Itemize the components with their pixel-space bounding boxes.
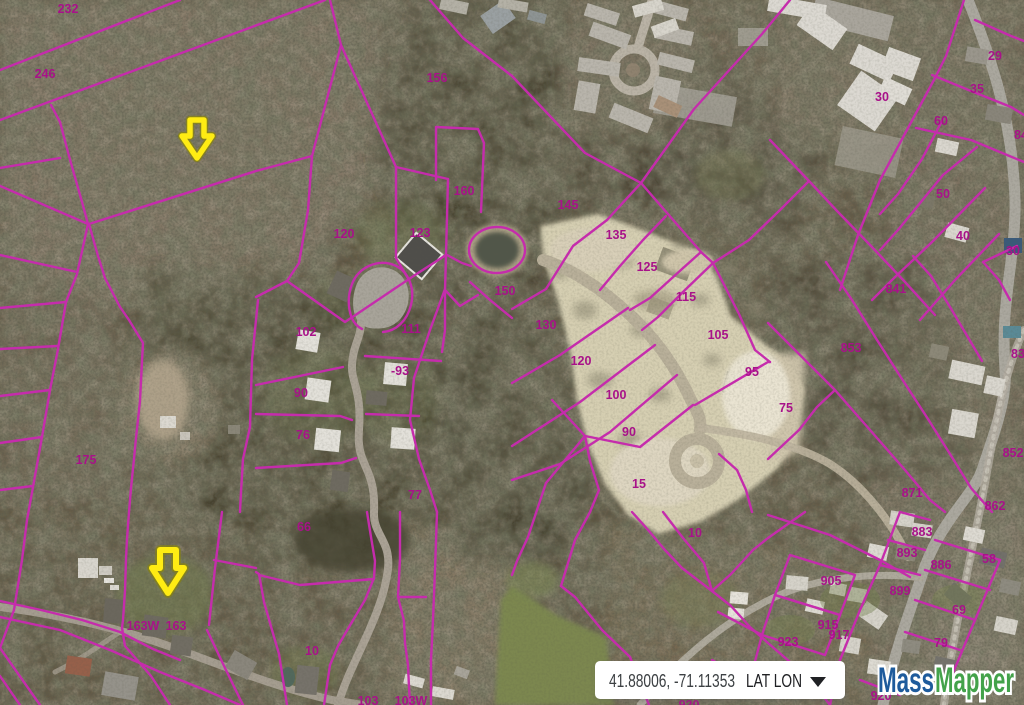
svg-text:905: 905	[821, 574, 842, 588]
svg-text:58: 58	[982, 552, 996, 566]
svg-text:120: 120	[571, 354, 592, 368]
svg-text:10: 10	[688, 526, 702, 540]
svg-text:899: 899	[890, 584, 911, 598]
svg-text:79: 79	[934, 636, 948, 650]
svg-text:160: 160	[454, 184, 475, 198]
svg-text:69: 69	[952, 603, 966, 617]
svg-text:871: 871	[902, 486, 923, 500]
svg-text:130: 130	[536, 318, 557, 332]
svg-text:145: 145	[558, 198, 579, 212]
svg-text:Mapper: Mapper	[935, 661, 1014, 700]
svg-text:163: 163	[166, 619, 187, 633]
svg-text:30: 30	[1006, 244, 1020, 258]
svg-text:40: 40	[956, 229, 970, 243]
svg-text:246: 246	[35, 67, 56, 81]
svg-text:923: 923	[778, 635, 799, 649]
svg-text:893: 893	[897, 546, 918, 560]
svg-text:105: 105	[708, 328, 729, 342]
svg-text:100: 100	[606, 388, 627, 402]
svg-text:163W: 163W	[127, 619, 160, 633]
svg-text:852: 852	[1003, 446, 1024, 460]
svg-text:853: 853	[841, 341, 862, 355]
svg-text:29: 29	[988, 49, 1002, 63]
svg-text:84: 84	[1014, 128, 1024, 142]
svg-text:135: 135	[606, 228, 627, 242]
svg-text:50: 50	[936, 187, 950, 201]
svg-text:30: 30	[875, 90, 889, 104]
svg-text:841: 841	[886, 282, 907, 296]
svg-text:125: 125	[637, 260, 658, 274]
svg-text:75: 75	[779, 401, 793, 415]
svg-text:Mass: Mass	[878, 661, 934, 700]
svg-text:103: 103	[358, 694, 379, 705]
svg-text:232: 232	[58, 2, 79, 16]
svg-text:120: 120	[334, 227, 355, 241]
svg-text:156: 156	[427, 71, 448, 85]
svg-text:60: 60	[934, 114, 948, 128]
svg-text:862: 862	[985, 499, 1006, 513]
svg-text:-93: -93	[391, 364, 409, 378]
svg-text:95: 95	[745, 365, 759, 379]
svg-text:90: 90	[622, 425, 636, 439]
svg-text:66: 66	[297, 520, 311, 534]
svg-text:917: 917	[829, 628, 850, 642]
svg-text:76: 76	[296, 428, 310, 442]
svg-text:LAT LON: LAT LON	[746, 670, 802, 691]
svg-text:15: 15	[632, 477, 646, 491]
svg-text:102: 102	[296, 325, 317, 339]
svg-text:10: 10	[305, 644, 319, 658]
svg-text:115: 115	[676, 290, 696, 304]
svg-text:90: 90	[294, 386, 308, 400]
svg-text:35: 35	[970, 82, 984, 96]
svg-text:41.88006, -71.11353: 41.88006, -71.11353	[609, 670, 735, 691]
svg-text:77: 77	[408, 488, 422, 502]
svg-text:111: 111	[401, 322, 421, 336]
svg-text:83: 83	[1011, 347, 1024, 361]
svg-text:886: 886	[931, 558, 952, 572]
svg-text:103W: 103W	[395, 694, 428, 705]
svg-text:175: 175	[76, 453, 97, 467]
svg-text:123: 123	[410, 226, 431, 240]
svg-text:150: 150	[495, 284, 516, 298]
svg-text:883: 883	[912, 525, 933, 539]
